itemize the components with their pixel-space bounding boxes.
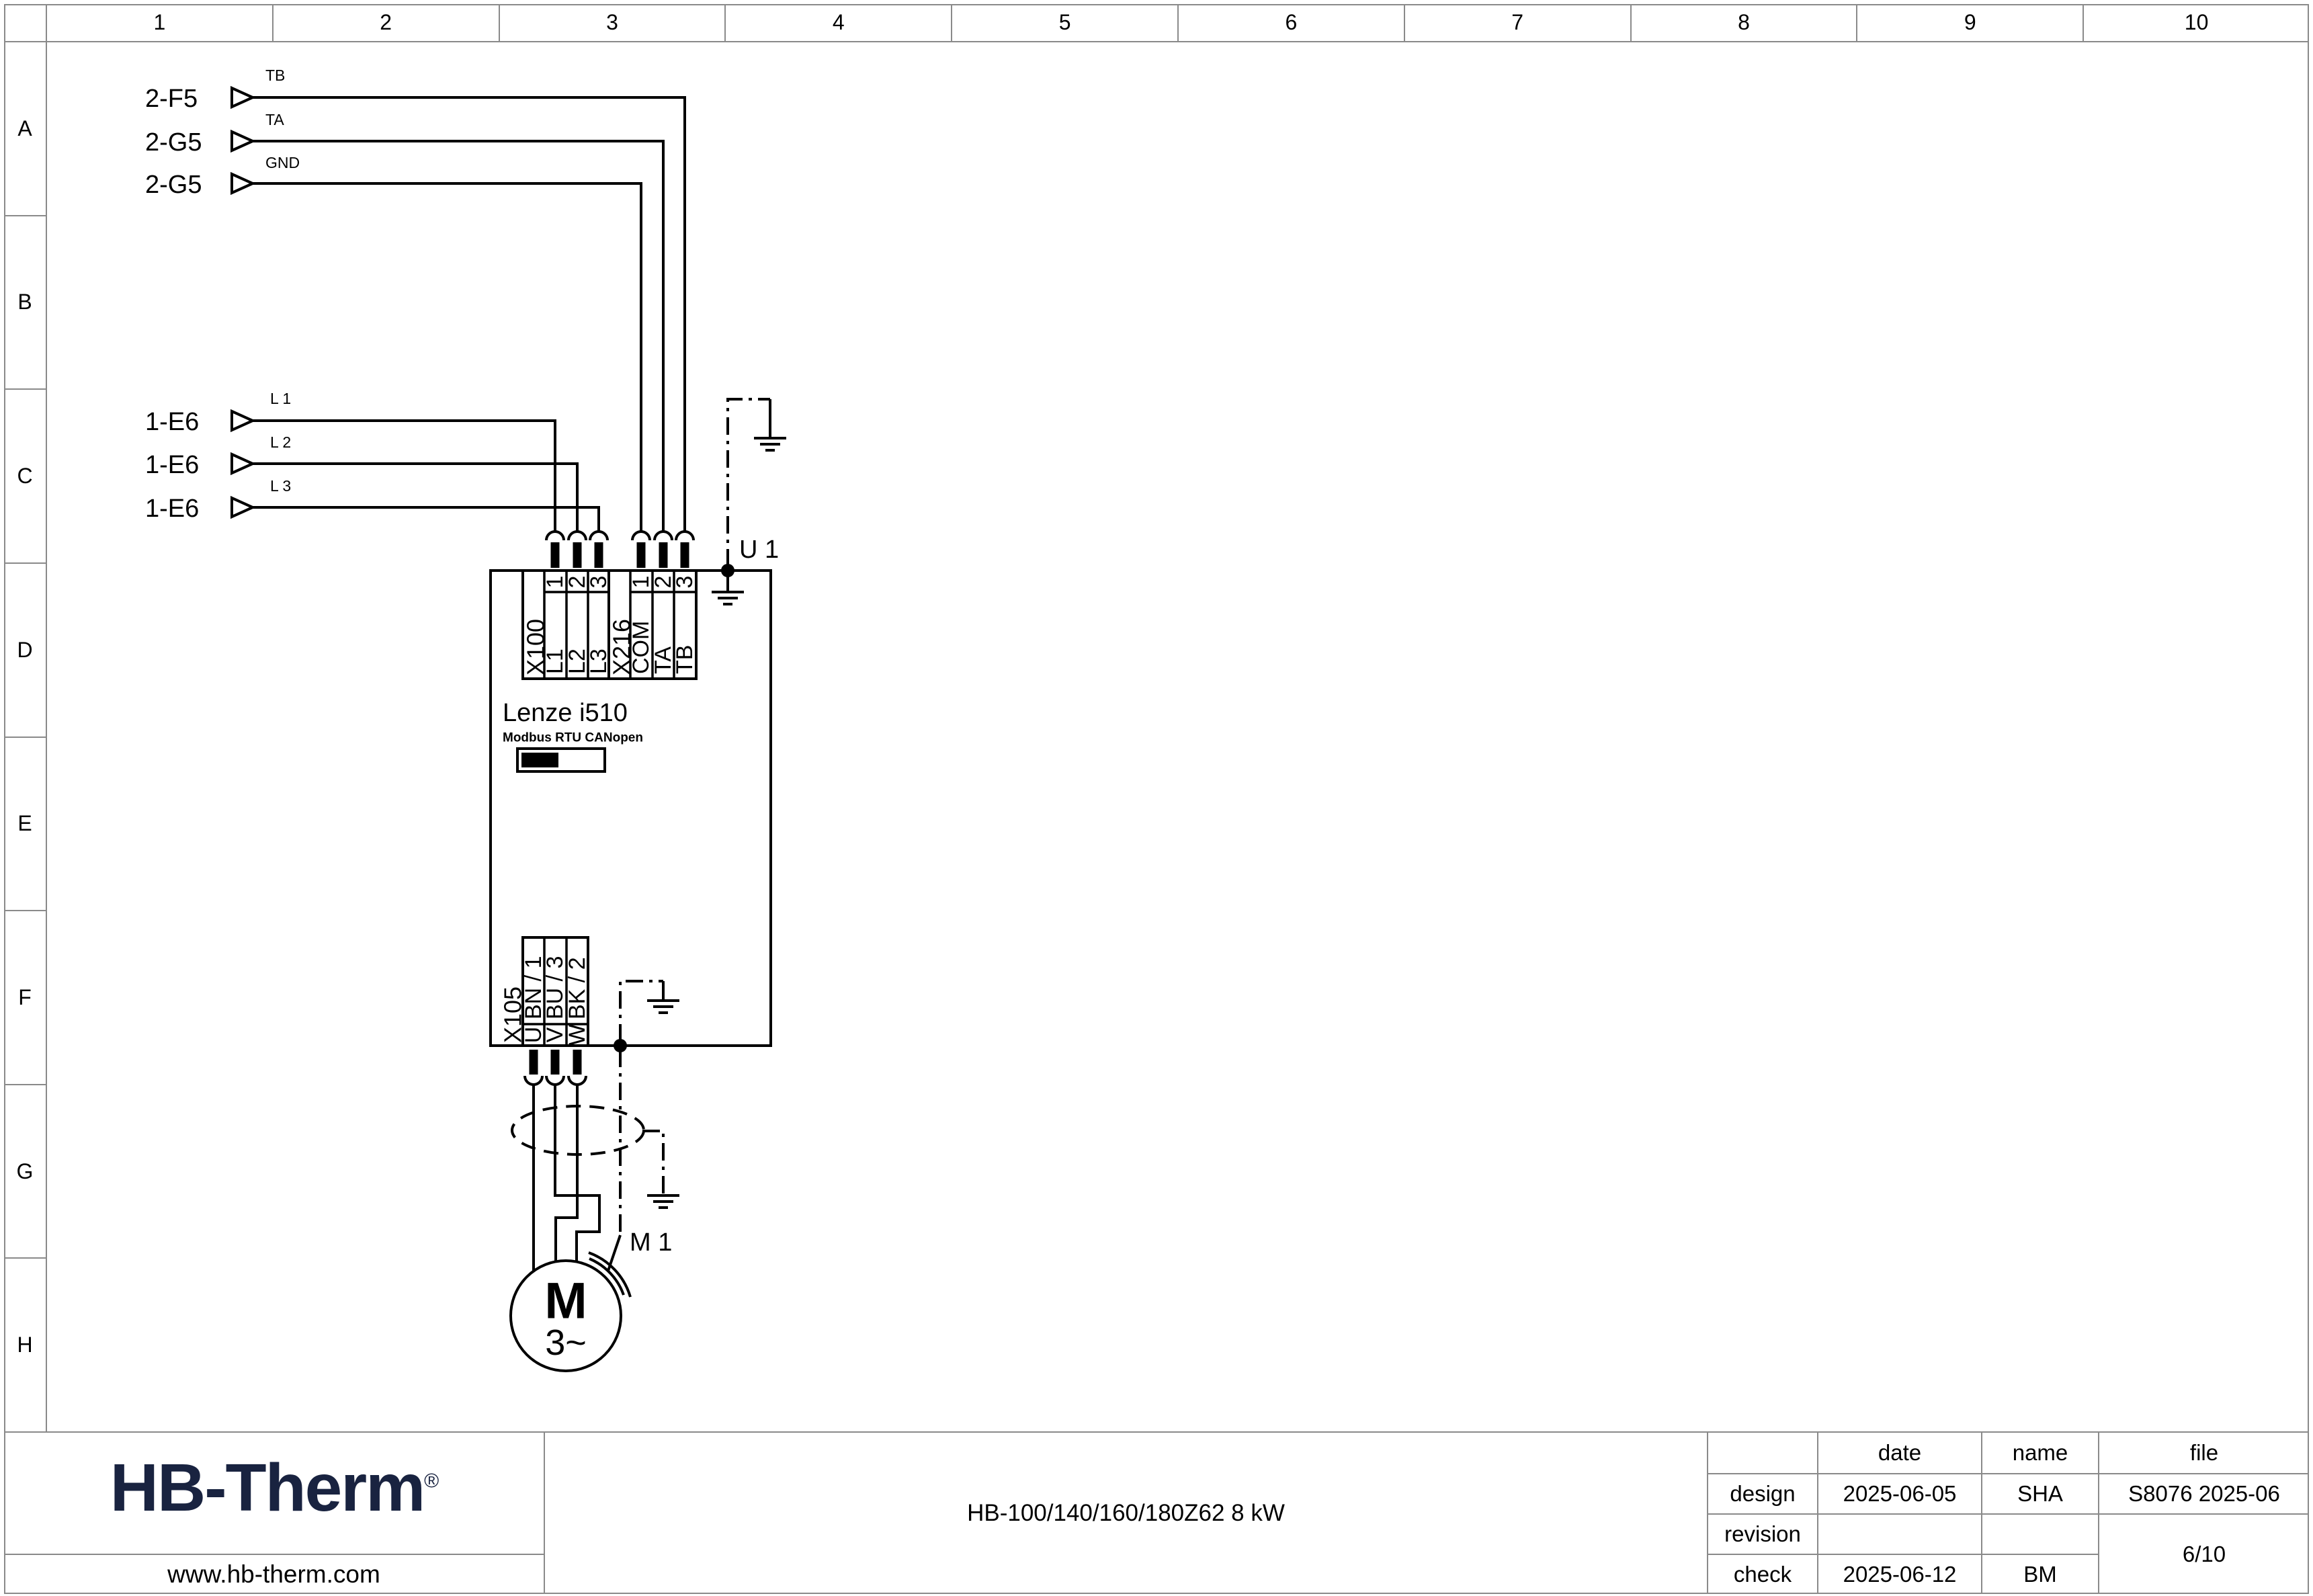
- check-name: BM: [1981, 1554, 2098, 1594]
- pin-icon: [530, 1050, 538, 1075]
- connector-arrow-icon: [232, 88, 253, 107]
- pin-icon: [573, 1050, 582, 1075]
- wire-label: TA: [265, 111, 284, 128]
- pin-icon: [659, 542, 668, 568]
- wire-l2: [253, 464, 577, 531]
- wire-l1: [253, 421, 555, 531]
- source-ref: 2-G5: [145, 171, 202, 199]
- connector-arrow-icon: [232, 454, 253, 473]
- shield-line-ellipse: [642, 1131, 663, 1194]
- wire-l3: [253, 507, 599, 531]
- wire-ta: [253, 141, 663, 531]
- motor-symbol: M 3~: [511, 1253, 630, 1371]
- drive-designation: U 1: [739, 536, 779, 564]
- design-name: SHA: [1981, 1473, 2098, 1513]
- title-block-logo-cell: HB-Therm® www.hb-therm.com: [4, 1433, 545, 1594]
- plug-pin-icons-bottom: [525, 1050, 586, 1085]
- website-text: www.hb-therm.com: [167, 1560, 380, 1589]
- connector-arrow-icon: [232, 174, 253, 193]
- socket-arc-icon: [569, 532, 586, 540]
- connector-arrow-icon: [232, 132, 253, 151]
- schematic-sheet: 1 2 3 4 5 6 7 8 9 10 A B C D E F G H: [0, 0, 2313, 1596]
- motor-letter: M: [544, 1273, 587, 1330]
- pin-signal: BK / 2: [564, 957, 590, 1019]
- socket-arc-icon: [546, 532, 564, 540]
- header-name: name: [1981, 1433, 2098, 1473]
- motor-phase: 3~: [545, 1322, 587, 1363]
- revision-label: revision: [1708, 1513, 1817, 1554]
- title-block: HB-Therm® www.hb-therm.com HB-100/140/16…: [4, 1431, 2309, 1594]
- wire-label: TB: [265, 67, 285, 84]
- socket-arc-icon: [569, 1076, 586, 1085]
- wire-label: GND: [265, 154, 300, 171]
- junction-dot: [721, 564, 734, 577]
- ground-icon: [754, 399, 786, 450]
- terminal-block-x216: X216 1 2 3 COM TA TB: [608, 571, 698, 679]
- source-ref: 1-E6: [145, 408, 199, 436]
- logo-area: HB-Therm®: [4, 1433, 544, 1554]
- source-arrow-icons: [232, 88, 253, 517]
- wire-label: L 2: [270, 433, 291, 451]
- pin-signal: TB: [672, 645, 698, 674]
- source-ref: 2-F5: [145, 85, 198, 113]
- fieldbus-switch-icon: [517, 749, 605, 771]
- header-file: file: [2098, 1433, 2309, 1473]
- pin-icon: [681, 542, 689, 568]
- connector-arrow-icon: [232, 498, 253, 517]
- revision-name: [1981, 1513, 2098, 1554]
- pin-icon: [637, 542, 646, 568]
- website-cell: www.hb-therm.com: [4, 1554, 544, 1594]
- source-ref: 2-G5: [145, 128, 202, 157]
- junction-dot: [614, 1039, 627, 1052]
- table-corner-cell: [1708, 1433, 1817, 1473]
- pin-number: 3: [672, 576, 698, 589]
- header-date: date: [1817, 1433, 1981, 1473]
- pin-icon: [573, 542, 582, 568]
- wire-gnd: [253, 183, 641, 531]
- document-title: HB-100/140/160/180Z62 8 kW: [967, 1500, 1285, 1527]
- drive-product-label: Lenze i510: [503, 699, 628, 727]
- drive-fieldbus-label: Modbus RTU CANopen: [503, 731, 643, 745]
- check-date: 2025-06-12: [1817, 1554, 1981, 1594]
- socket-arc-icon: [546, 1076, 564, 1085]
- source-ref: 1-E6: [145, 495, 199, 523]
- source-ref: 1-E6: [145, 451, 199, 479]
- socket-arc-icon: [676, 532, 693, 540]
- terminal-block-x100: X100 1 2 3 L1 L2 L3: [522, 571, 612, 679]
- plug-pin-icons-top: [546, 532, 693, 568]
- socket-arc-icon: [632, 532, 650, 540]
- socket-arc-icon: [525, 1076, 542, 1085]
- switch-knob: [521, 753, 558, 767]
- wire-tb: [253, 97, 685, 531]
- check-label: check: [1708, 1554, 1817, 1594]
- hb-therm-logo: HB-Therm®: [110, 1450, 437, 1527]
- ground-icon: [647, 1195, 679, 1208]
- revision-date: [1817, 1513, 1981, 1554]
- logo-text: HB-Therm: [110, 1450, 424, 1525]
- design-date: 2025-06-05: [1817, 1473, 1981, 1513]
- pin-icon: [551, 1050, 560, 1075]
- socket-arc-icon: [590, 532, 607, 540]
- pin-icon: [595, 542, 603, 568]
- document-title-cell: HB-100/140/160/180Z62 8 kW: [545, 1433, 1707, 1594]
- revision-table: date name file design 2025-06-05 SHA S80…: [1707, 1433, 2309, 1594]
- pin-icon: [551, 542, 560, 568]
- wire-label: L 3: [270, 477, 291, 495]
- wire-w: [556, 1085, 577, 1261]
- pin-number: W: [564, 1024, 590, 1046]
- registered-mark-icon: ®: [424, 1470, 437, 1492]
- page-indicator: 6/10: [2098, 1513, 2309, 1594]
- design-label: design: [1708, 1473, 1817, 1513]
- connector-arrow-icon: [232, 411, 253, 430]
- design-file: S8076 2025-06: [2098, 1473, 2309, 1513]
- wiring-diagram: 2-F5 2-G5 2-G5 1-E6 1-E6 1-E6 TB TA GND …: [0, 0, 2313, 1596]
- motor-designation: M 1: [630, 1228, 672, 1257]
- socket-arc-icon: [655, 532, 672, 540]
- wire-label: L 1: [270, 390, 291, 407]
